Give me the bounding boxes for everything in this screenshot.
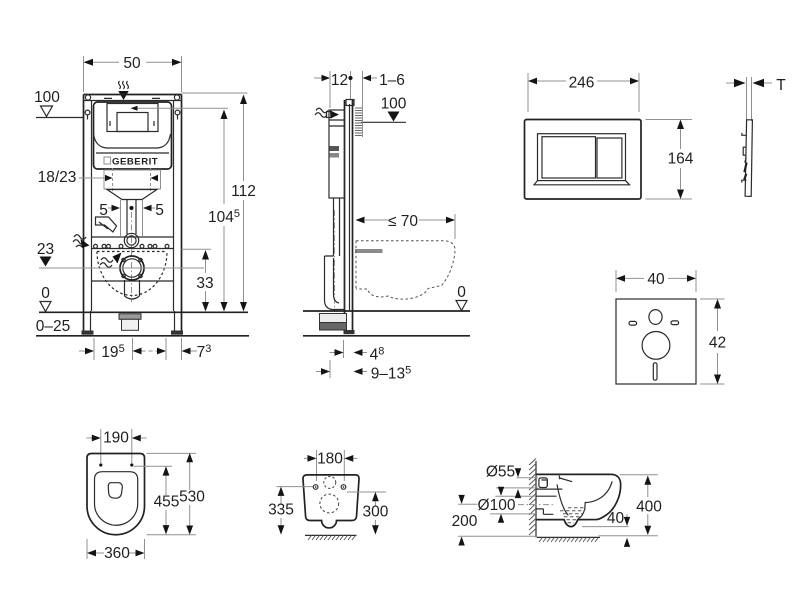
svg-text:GEBERIT: GEBERIT — [112, 157, 158, 168]
svg-text:1–6: 1–6 — [379, 72, 405, 89]
svg-text:18/23: 18/23 — [38, 169, 77, 186]
svg-text:42: 42 — [709, 335, 726, 352]
svg-text:400: 400 — [636, 499, 662, 516]
svg-text:300: 300 — [362, 504, 388, 521]
svg-text:23: 23 — [37, 241, 54, 258]
svg-text:246: 246 — [569, 75, 595, 92]
svg-text:112: 112 — [231, 183, 256, 200]
svg-text:200: 200 — [452, 513, 478, 530]
svg-text:100: 100 — [381, 96, 407, 113]
svg-text:0: 0 — [41, 285, 50, 302]
svg-text:100: 100 — [34, 89, 60, 106]
svg-text:Ø100: Ø100 — [478, 497, 516, 514]
svg-text:455: 455 — [154, 494, 180, 511]
svg-text:T: T — [776, 77, 786, 94]
svg-text:335: 335 — [268, 502, 294, 519]
svg-text:530: 530 — [179, 489, 205, 506]
svg-text:0–25: 0–25 — [36, 318, 70, 335]
svg-text:164: 164 — [668, 151, 694, 168]
svg-text:40: 40 — [607, 510, 625, 527]
svg-text:12: 12 — [331, 72, 348, 89]
svg-text:360: 360 — [104, 545, 130, 562]
svg-text:50: 50 — [123, 55, 141, 72]
svg-text:180: 180 — [317, 451, 343, 468]
svg-text:190: 190 — [103, 430, 129, 447]
svg-text:Ø55: Ø55 — [486, 464, 515, 481]
svg-text:≤ 70: ≤ 70 — [388, 213, 418, 230]
svg-text:40: 40 — [647, 271, 665, 288]
svg-text:33: 33 — [196, 275, 213, 292]
svg-text:0: 0 — [457, 284, 466, 301]
svg-text:5: 5 — [155, 202, 164, 219]
